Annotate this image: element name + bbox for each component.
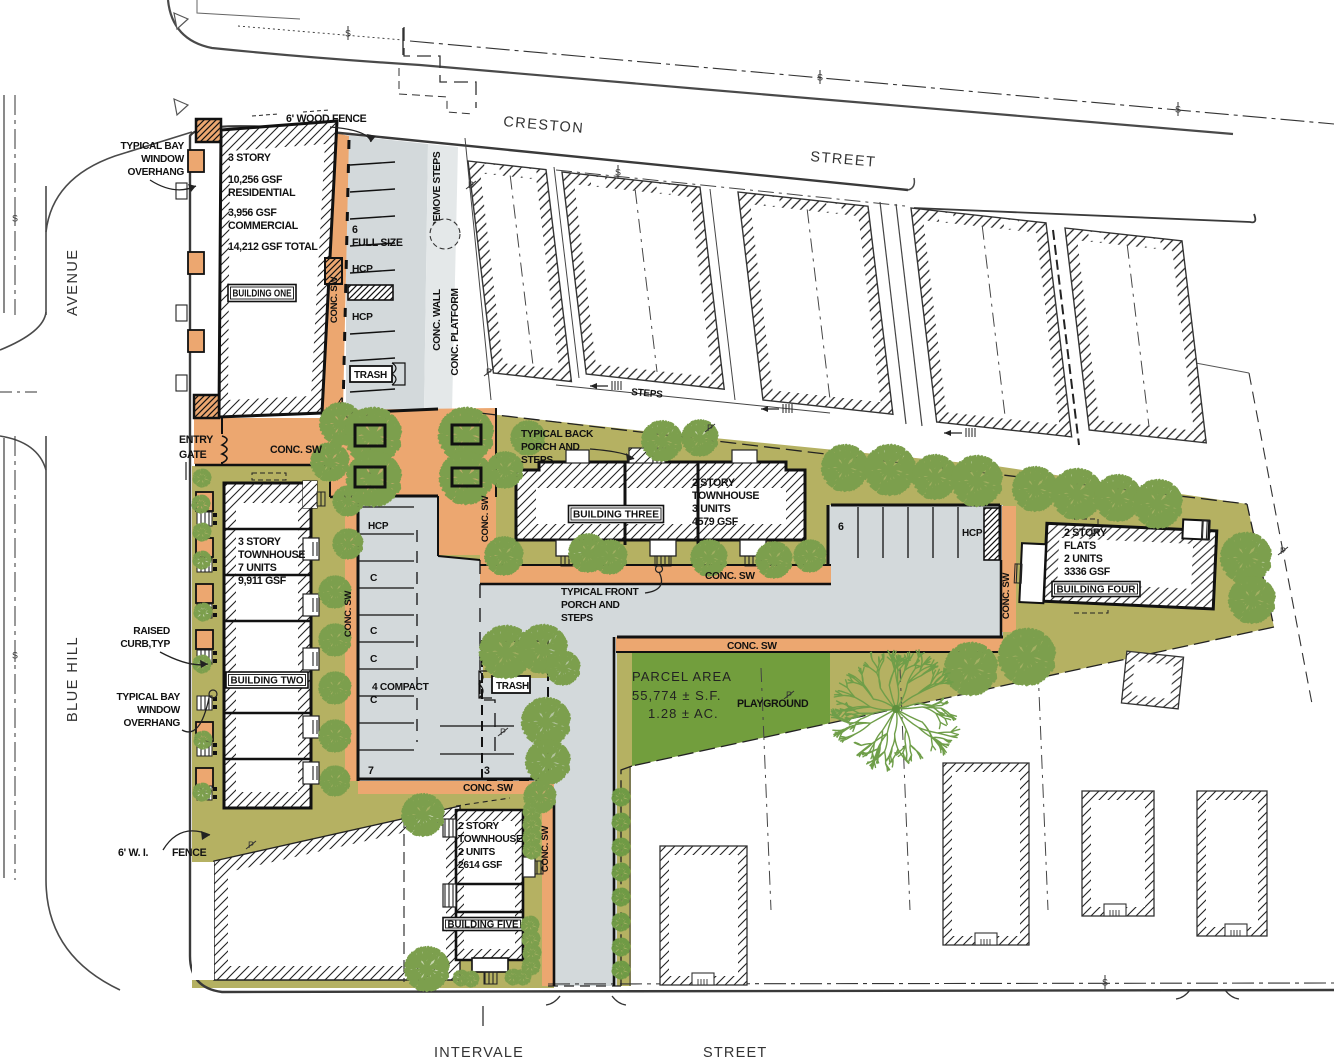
svg-text:3: 3 <box>484 765 490 777</box>
svg-text:3 UNITS: 3 UNITS <box>692 503 731 515</box>
svg-text:3,956 GSF: 3,956 GSF <box>228 207 277 219</box>
svg-text:CONC. SW: CONC. SW <box>480 496 491 542</box>
svg-text:TOWNHOUSE: TOWNHOUSE <box>458 834 523 845</box>
svg-text:PORCH AND: PORCH AND <box>561 600 620 611</box>
svg-text:9,911 GSF: 9,911 GSF <box>238 575 287 587</box>
svg-text:PARCEL AREA: PARCEL AREA <box>632 669 732 684</box>
svg-text:CONC. PLATFORM: CONC. PLATFORM <box>450 288 461 375</box>
svg-text:INTERVALE: INTERVALE <box>434 1045 524 1061</box>
svg-text:2 STORY: 2 STORY <box>692 477 735 489</box>
svg-text:14,212 GSF TOTAL: 14,212 GSF TOTAL <box>228 241 318 253</box>
svg-text:AVENUE: AVENUE <box>65 248 81 316</box>
svg-text:S: S <box>1175 105 1181 115</box>
svg-text:GATE: GATE <box>179 449 207 461</box>
svg-text:2 STORY: 2 STORY <box>458 821 499 832</box>
svg-text:STEPS: STEPS <box>561 613 593 624</box>
svg-text:4579 GSF: 4579 GSF <box>692 516 739 528</box>
svg-text:HCP: HCP <box>352 264 373 275</box>
svg-text:3336 GSF: 3336 GSF <box>1064 566 1111 578</box>
svg-text:C: C <box>370 654 378 665</box>
svg-text:TRASH: TRASH <box>354 370 387 381</box>
svg-text:S: S <box>12 651 18 661</box>
svg-text:TRASH: TRASH <box>496 681 529 692</box>
svg-text:REMOVE STEPS: REMOVE STEPS <box>432 151 443 228</box>
svg-text:CURB,TYP: CURB,TYP <box>120 639 170 650</box>
svg-text:TYPICAL BAY: TYPICAL BAY <box>121 141 185 152</box>
svg-text:7: 7 <box>368 765 374 777</box>
svg-text:TYPICAL BACK: TYPICAL BACK <box>521 429 594 440</box>
svg-text:6' WOOD FENCE: 6' WOOD FENCE <box>286 113 367 125</box>
svg-text:BLUE HILL: BLUE HILL <box>65 636 81 722</box>
svg-text:C: C <box>370 626 378 637</box>
svg-text:3 STORY: 3 STORY <box>228 152 271 164</box>
svg-text:55,774 ± S.F.: 55,774 ± S.F. <box>632 688 722 703</box>
svg-text:S: S <box>615 168 621 178</box>
svg-text:TOWNHOUSE: TOWNHOUSE <box>238 549 305 561</box>
svg-text:OVERHANG: OVERHANG <box>124 718 181 729</box>
svg-text:C: C <box>370 573 378 584</box>
svg-text:CONC. SW: CONC. SW <box>727 641 777 652</box>
svg-text:BUILDING FOUR: BUILDING FOUR <box>1057 585 1137 596</box>
svg-text:BUILDING THREE: BUILDING THREE <box>573 510 659 521</box>
svg-text:ENTRY: ENTRY <box>179 434 213 446</box>
svg-text:CONC. SW: CONC. SW <box>1001 573 1012 619</box>
svg-text:FLATS: FLATS <box>1064 540 1096 552</box>
svg-text:TYPICAL BAY: TYPICAL BAY <box>117 692 181 703</box>
svg-text:6' W. I.: 6' W. I. <box>118 847 148 859</box>
svg-text:STREET: STREET <box>703 1045 767 1061</box>
svg-text:HCP: HCP <box>962 528 983 539</box>
svg-text:HCP: HCP <box>368 521 389 532</box>
svg-text:PLAYGROUND: PLAYGROUND <box>737 698 809 710</box>
svg-text:BUILDING FIVE: BUILDING FIVE <box>448 920 519 931</box>
svg-text:3 STORY: 3 STORY <box>238 536 281 548</box>
svg-text:STEPS: STEPS <box>521 455 553 466</box>
svg-text:FENCE: FENCE <box>172 847 207 859</box>
svg-text:TYPICAL FRONT: TYPICAL FRONT <box>561 587 639 598</box>
svg-text:CONC. SW: CONC. SW <box>463 783 513 794</box>
svg-text:CONC. SW: CONC. SW <box>270 444 322 456</box>
svg-text:WINDOW: WINDOW <box>141 154 185 165</box>
svg-text:10,256 GSF: 10,256 GSF <box>228 174 283 186</box>
svg-text:2 UNITS: 2 UNITS <box>458 847 495 858</box>
svg-text:2614 GSF: 2614 GSF <box>458 860 502 871</box>
svg-text:TOWNHOUSE: TOWNHOUSE <box>692 490 759 502</box>
svg-text:RAISED: RAISED <box>133 626 170 637</box>
svg-text:COMMERCIAL: COMMERCIAL <box>228 220 299 232</box>
svg-text:C: C <box>370 695 378 706</box>
svg-text:4 COMPACT: 4 COMPACT <box>372 682 430 693</box>
svg-text:OVERHANG: OVERHANG <box>128 167 185 178</box>
svg-text:BUILDING ONE: BUILDING ONE <box>233 289 292 300</box>
svg-text:S: S <box>817 73 823 83</box>
svg-text:6: 6 <box>352 224 358 236</box>
svg-text:CONC. SW: CONC. SW <box>343 591 354 637</box>
svg-text:7 UNITS: 7 UNITS <box>238 562 277 574</box>
svg-text:2 UNITS: 2 UNITS <box>1064 553 1103 565</box>
svg-text:PORCH AND: PORCH AND <box>521 442 580 453</box>
svg-text:6: 6 <box>838 521 844 533</box>
svg-text:HCP: HCP <box>352 312 373 323</box>
svg-text:S: S <box>1102 978 1108 988</box>
svg-text:BUILDING TWO: BUILDING TWO <box>231 676 304 687</box>
svg-text:S: S <box>12 214 18 224</box>
svg-text:2 STORY: 2 STORY <box>1064 527 1107 539</box>
svg-text:CONC. SW: CONC. SW <box>329 277 340 323</box>
svg-text:FULL SIZE: FULL SIZE <box>352 237 403 249</box>
svg-text:S: S <box>345 29 351 39</box>
svg-text:CONC. SW: CONC. SW <box>540 826 551 872</box>
svg-text:WINDOW: WINDOW <box>137 705 181 716</box>
svg-text:1.28 ± AC.: 1.28 ± AC. <box>648 706 719 721</box>
svg-text:CONC. WALL: CONC. WALL <box>432 289 443 351</box>
svg-text:CONC. SW: CONC. SW <box>705 571 755 582</box>
svg-text:RESIDENTIAL: RESIDENTIAL <box>228 187 296 199</box>
